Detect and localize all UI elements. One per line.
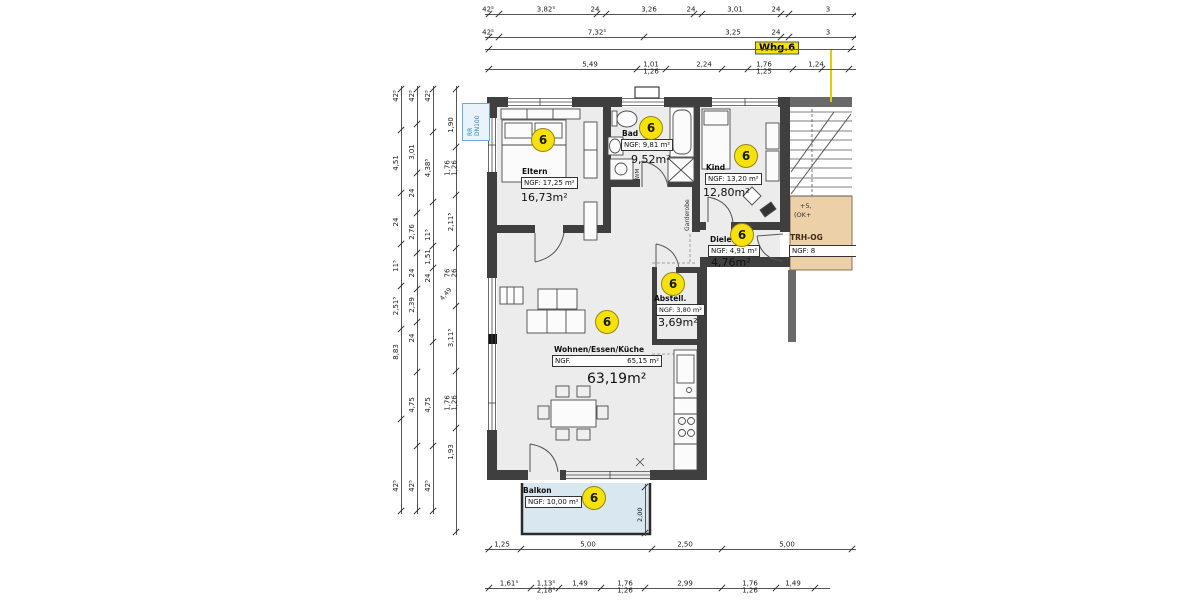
dimension-label: 24 <box>772 30 781 37</box>
dimension-label: 3,26 <box>641 7 657 14</box>
dimension-label: 3,01 <box>409 144 416 160</box>
dimension-label: 4,51 <box>393 155 400 171</box>
dimension-label: 24 <box>409 334 416 343</box>
dimension-label: 5,00 <box>580 542 596 549</box>
dimension-line <box>456 86 457 535</box>
dimension-label: 3,82⁵ <box>537 7 555 14</box>
dimension-line <box>645 484 646 536</box>
dimension-label: 2,24 <box>696 62 712 69</box>
dimension-label: 8,83 <box>393 344 400 360</box>
dimension-label: 42⁵ <box>425 480 432 492</box>
dimension-label: 4,75 <box>425 397 432 413</box>
dimension-label: 11⁵ <box>425 229 432 241</box>
dimension-label: 5,49 <box>582 62 598 69</box>
dimension-label: 3,01 <box>727 7 743 14</box>
dimension-line <box>417 86 418 514</box>
dimension-label: 24 <box>409 269 416 278</box>
dimension-label: 1,61⁵ <box>500 581 518 588</box>
dimension-label: 1,24 <box>808 62 824 69</box>
dimension-label: 4,38⁵ <box>425 159 432 177</box>
dimension-label: 1,49 <box>572 581 588 588</box>
dimension-label: 24 <box>772 7 781 14</box>
dimension-label: 24 <box>591 7 600 14</box>
floor-plan-page: Whg.6 RR DN100 Eltern NGF: 17,25 m² 16,7… <box>0 0 1200 600</box>
dimension-line <box>433 86 434 514</box>
dimension-line <box>485 549 858 550</box>
dimension-label: 1,90 <box>448 117 455 133</box>
dimension-label: 2,99 <box>677 581 693 588</box>
dimension-label: 1,761,26 <box>617 581 633 594</box>
dimension-label: 1,761,25 <box>756 62 772 75</box>
dimension-label: 42⁵ <box>409 480 416 492</box>
dimension-label: 1,011,26 <box>643 62 659 75</box>
dimension-label: 1,25 <box>494 542 510 549</box>
dimension-label: 24 <box>393 218 400 227</box>
dimension-label: 3 <box>826 7 830 14</box>
dimension-label: 4,75 <box>409 397 416 413</box>
dimension-label: 1,51 <box>425 249 432 265</box>
dimension-line <box>485 69 858 70</box>
dimension-label: 2,76 <box>409 224 416 240</box>
dimension-label: 42⁵ <box>482 7 494 14</box>
dimension-line <box>485 14 858 15</box>
dimension-label: 42⁵ <box>425 90 432 102</box>
dimension-label: 7,32⁵ <box>588 30 606 37</box>
dimension-line <box>485 37 858 38</box>
dimension-label: 2,50 <box>677 542 693 549</box>
dimension-label: 3 <box>826 30 830 37</box>
dimension-line <box>485 49 858 50</box>
dimension-label: 1,761,26 <box>445 395 458 411</box>
dimension-label: 5,00 <box>779 542 795 549</box>
dimension-label: 11⁵ <box>393 260 400 272</box>
dimension-label: 42⁵ <box>393 90 400 102</box>
dimension-label: 3,11⁵ <box>448 329 455 347</box>
dimension-label: 2,39 <box>409 297 416 313</box>
dimension-label: 24 <box>425 274 432 283</box>
dimension-label: 42⁵ <box>393 480 400 492</box>
dimension-label: 24 <box>687 7 696 14</box>
dimension-label: 1,13⁵2,18⁵ <box>537 581 555 594</box>
dimension-label: 7626 <box>445 269 458 278</box>
dimension-label: 42⁵ <box>482 30 494 37</box>
dimension-label: 1,761,26 <box>445 160 458 176</box>
dimension-label: 42⁵ <box>409 90 416 102</box>
dimension-label: 2,51⁵ <box>393 297 400 315</box>
dimension-label: 1,49 <box>785 581 801 588</box>
scan-edge-whitespace <box>856 0 1200 600</box>
dimension-label: 3,25 <box>725 30 741 37</box>
dimension-label: 24 <box>409 189 416 198</box>
dimension-label: 1,93 <box>448 444 455 460</box>
dimension-label: 1,761,26 <box>742 581 758 594</box>
dimension-line <box>401 86 402 514</box>
dimension-label: 2,11⁵ <box>448 213 455 231</box>
